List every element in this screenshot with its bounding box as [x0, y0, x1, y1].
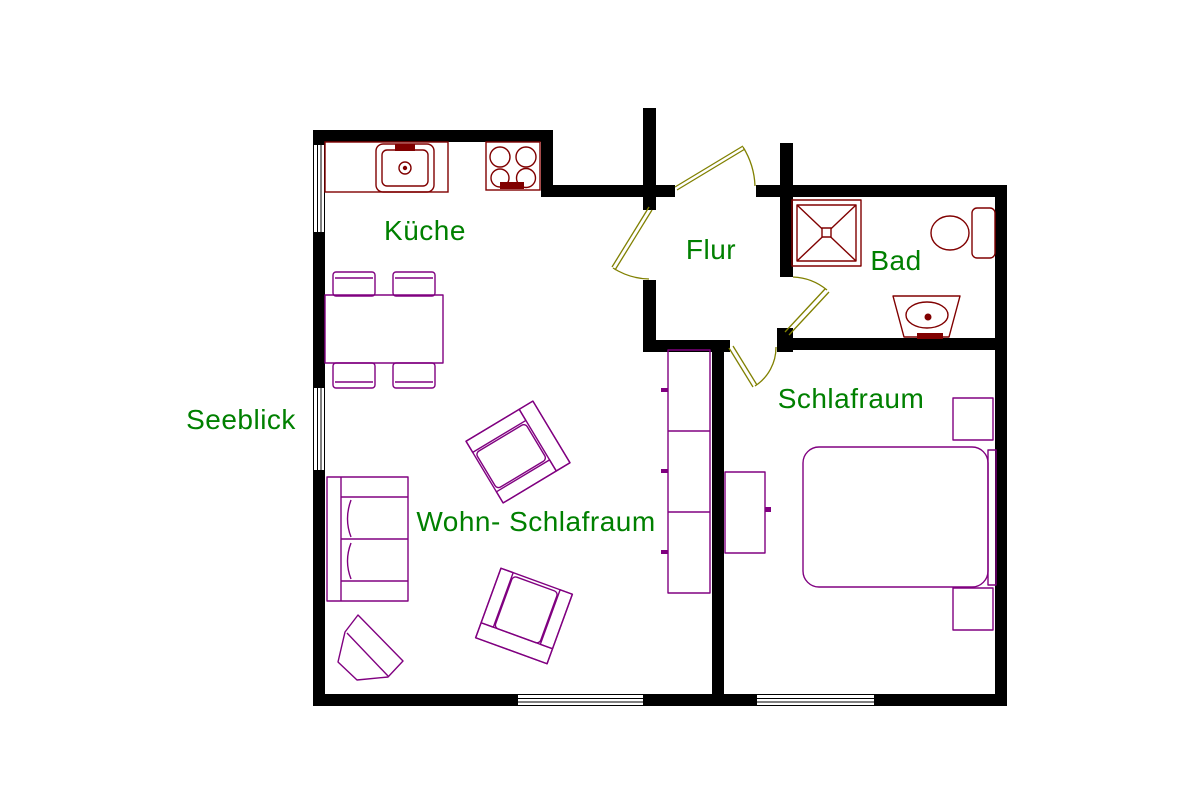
- floorplan: Küche Flur Bad Schlafraum Wohn- Schlafra…: [0, 0, 1200, 800]
- view-annotation-seeblick: Seeblick: [186, 404, 296, 436]
- dining-table-icon: [325, 295, 443, 363]
- door-swing-icon: [785, 277, 829, 335]
- armchair-icon: [476, 568, 573, 664]
- wall-bottom: [313, 694, 1007, 706]
- toilet-icon: [931, 208, 995, 258]
- wall-stub-entrance-right: [780, 143, 793, 197]
- wall-hall-top-right: [756, 185, 1007, 197]
- room-label-flur: Flur: [686, 234, 736, 266]
- washbasin-icon: [893, 296, 960, 339]
- window-icon: [313, 145, 325, 232]
- chair-icon: [393, 363, 435, 388]
- chair-icon: [393, 272, 435, 296]
- room-label-schlafraum: Schlafraum: [778, 383, 925, 415]
- stove-icon: [486, 142, 540, 190]
- wall-bad-bottom: [780, 338, 1007, 350]
- chair-icon: [333, 272, 375, 296]
- room-label-wohn-schlafraum: Wohn- Schlafraum: [416, 506, 655, 538]
- chair-icon: [333, 363, 375, 388]
- armchair-icon: [466, 401, 570, 503]
- corner-table-icon: [338, 615, 403, 680]
- window-icon: [313, 388, 325, 470]
- wall-right: [995, 185, 1007, 706]
- wall-stub-entrance-left: [643, 108, 656, 210]
- room-label-kueche: Küche: [384, 215, 466, 247]
- nightstand-icon: [953, 398, 993, 440]
- floorplan-drawing: [0, 0, 1200, 800]
- room-label-bad: Bad: [870, 245, 921, 277]
- wall-room-divider: [712, 340, 724, 706]
- sofa-icon: [327, 477, 408, 601]
- shower-icon: [792, 200, 861, 266]
- furniture: [325, 272, 996, 680]
- wall-bad-left-upper: [780, 197, 793, 277]
- bed-icon: [803, 447, 996, 587]
- door-swing-icon: [612, 207, 652, 279]
- door-swing-icon: [729, 346, 776, 387]
- dresser-icon: [725, 472, 771, 553]
- window-icon: [757, 694, 874, 706]
- kitchen-fixtures: [325, 142, 540, 192]
- nightstand-icon: [953, 588, 993, 630]
- window-icon: [518, 694, 643, 706]
- wall-top-kitchen: [313, 130, 553, 142]
- shelf-icon: [661, 350, 710, 593]
- sink-icon: [376, 144, 434, 192]
- door-swing-icon: [675, 146, 755, 190]
